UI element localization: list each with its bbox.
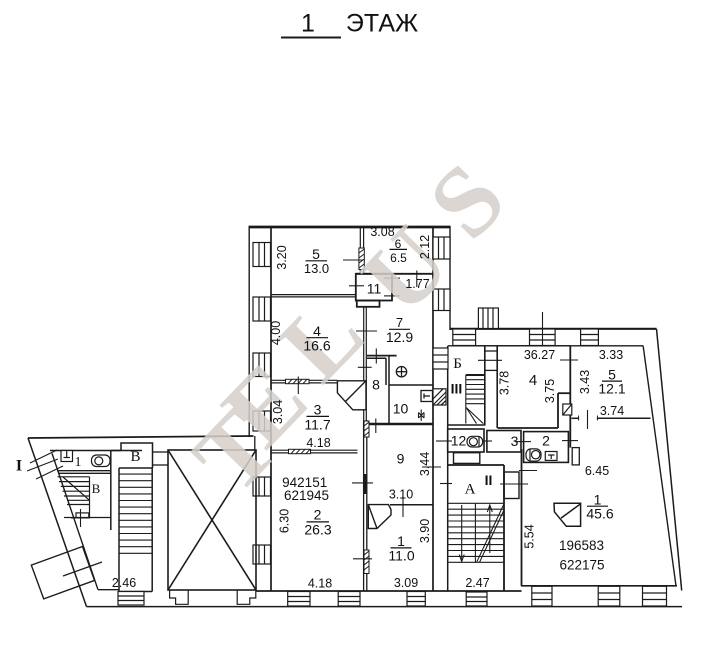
svg-text:3.09: 3.09 <box>394 576 418 590</box>
svg-text:2.46: 2.46 <box>112 576 136 590</box>
svg-text:11.7: 11.7 <box>304 417 330 433</box>
svg-text:Б: Б <box>453 356 462 372</box>
svg-text:16.6: 16.6 <box>303 338 330 354</box>
svg-text:3: 3 <box>511 433 519 449</box>
svg-text:1: 1 <box>301 10 315 38</box>
svg-text:621945: 621945 <box>284 488 329 503</box>
svg-text:3.44: 3.44 <box>418 452 432 476</box>
svg-text:2: 2 <box>542 433 550 449</box>
svg-text:5: 5 <box>312 246 320 262</box>
svg-text:3: 3 <box>314 402 322 418</box>
svg-text:13.0: 13.0 <box>304 261 329 276</box>
svg-text:3.20: 3.20 <box>275 245 289 269</box>
svg-text:6: 6 <box>395 237 402 251</box>
svg-text:12.1: 12.1 <box>598 381 625 397</box>
svg-text:4: 4 <box>529 372 537 389</box>
svg-text:1: 1 <box>75 455 82 470</box>
svg-text:6.45: 6.45 <box>585 464 609 478</box>
svg-text:12.9: 12.9 <box>386 329 413 345</box>
svg-text:3.08: 3.08 <box>370 225 394 239</box>
svg-text:I: I <box>16 457 22 474</box>
svg-text:3.04: 3.04 <box>271 400 285 424</box>
svg-text:3.75: 3.75 <box>543 379 557 403</box>
svg-text:622175: 622175 <box>559 557 604 572</box>
svg-text:10: 10 <box>393 401 409 417</box>
svg-text:В: В <box>92 481 101 496</box>
svg-text:4.18: 4.18 <box>306 436 330 450</box>
svg-text:III: III <box>451 381 463 397</box>
svg-text:3.43: 3.43 <box>578 370 592 394</box>
svg-text:196583: 196583 <box>559 538 604 553</box>
svg-text:11.0: 11.0 <box>388 548 414 564</box>
svg-text:В: В <box>130 449 140 465</box>
svg-text:2.12: 2.12 <box>418 235 432 259</box>
svg-text:3.74: 3.74 <box>600 404 624 418</box>
svg-text:3.10: 3.10 <box>389 488 413 502</box>
svg-text:7: 7 <box>396 315 403 330</box>
svg-text:4.18: 4.18 <box>308 577 332 591</box>
svg-text:4.00: 4.00 <box>269 321 283 345</box>
svg-text:А: А <box>465 481 476 497</box>
svg-text:9: 9 <box>397 451 405 467</box>
svg-text:6.30: 6.30 <box>278 509 292 533</box>
svg-text:3.78: 3.78 <box>498 371 512 395</box>
svg-text:8: 8 <box>372 377 380 393</box>
svg-text:2: 2 <box>314 507 322 523</box>
svg-text:5.54: 5.54 <box>523 524 537 548</box>
svg-text:12: 12 <box>451 433 467 449</box>
svg-text:2.47: 2.47 <box>465 576 489 590</box>
svg-text:1.77: 1.77 <box>405 277 429 291</box>
svg-text:36.27: 36.27 <box>524 348 555 362</box>
svg-text:3.33: 3.33 <box>599 348 623 362</box>
svg-text:ЭТАЖ: ЭТАЖ <box>346 10 418 38</box>
svg-text:6.5: 6.5 <box>390 251 407 265</box>
svg-text:II: II <box>485 472 493 488</box>
svg-text:45.6: 45.6 <box>586 506 613 522</box>
svg-text:3.90: 3.90 <box>418 519 432 543</box>
svg-text:11: 11 <box>367 281 382 297</box>
svg-text:26.3: 26.3 <box>304 522 331 538</box>
